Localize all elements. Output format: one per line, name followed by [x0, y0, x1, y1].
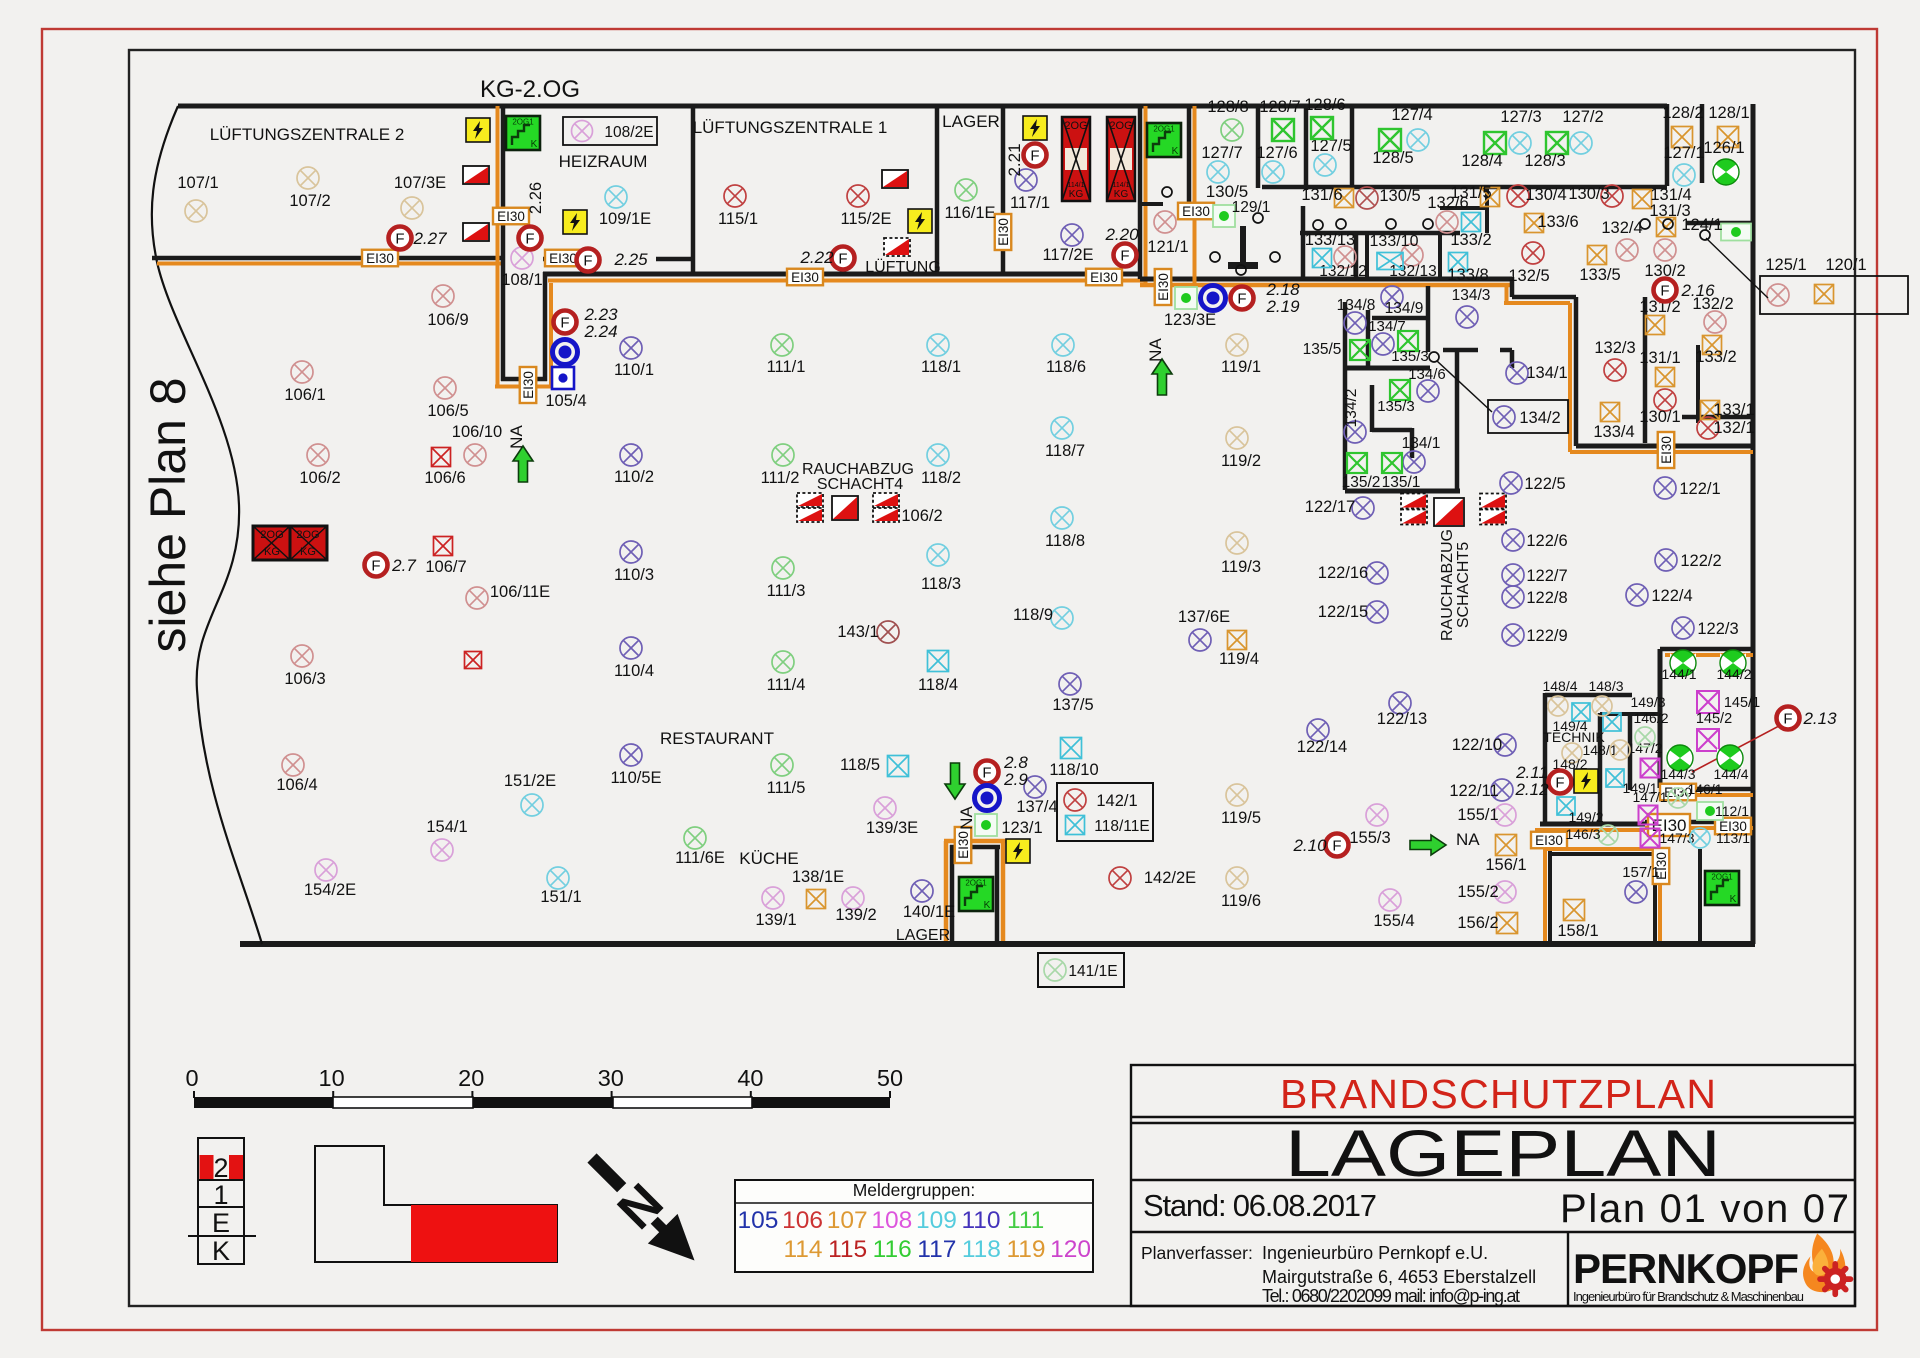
- svg-text:119: 119: [1006, 1236, 1045, 1263]
- svg-text:146/1: 146/1: [1687, 781, 1722, 797]
- svg-text:106/2: 106/2: [299, 469, 340, 487]
- svg-text:119/2: 119/2: [1221, 452, 1261, 470]
- svg-text:120/1: 120/1: [1825, 256, 1866, 274]
- svg-text:K: K: [531, 139, 538, 150]
- svg-text:LÜFTUNGSZENTRALE 2: LÜFTUNGSZENTRALE 2: [210, 125, 405, 144]
- svg-text:133/13: 133/13: [1305, 231, 1355, 249]
- svg-text:111/2: 111/2: [761, 469, 800, 487]
- svg-text:133/6: 133/6: [1537, 213, 1578, 231]
- svg-text:1: 1: [213, 1180, 228, 1210]
- svg-text:111/4: 111/4: [767, 676, 806, 694]
- svg-text:149/3: 149/3: [1630, 694, 1665, 710]
- svg-text:155/4: 155/4: [1373, 912, 1414, 930]
- svg-text:155/3: 155/3: [1349, 829, 1390, 847]
- svg-text:128/2: 128/2: [1662, 104, 1703, 122]
- svg-text:Plan 01 von 07: Plan 01 von 07: [1560, 1187, 1849, 1231]
- svg-text:Tel.: 0680/2202099 mail: info@: Tel.: 0680/2202099 mail: info@p-ing.at: [1262, 1286, 1520, 1306]
- svg-text:118/3: 118/3: [921, 575, 961, 593]
- svg-text:Planverfasser:: Planverfasser:: [1141, 1243, 1253, 1263]
- svg-text:114: 114: [783, 1236, 822, 1263]
- svg-text:139/2: 139/2: [835, 906, 876, 924]
- svg-text:2.10: 2.10: [1292, 836, 1327, 855]
- svg-text:132/5: 132/5: [1508, 267, 1549, 285]
- svg-text:2.24: 2.24: [583, 322, 617, 341]
- svg-text:158/1: 158/1: [1557, 922, 1598, 940]
- svg-text:LAGER: LAGER: [896, 927, 950, 944]
- svg-text:130/1: 130/1: [1639, 408, 1680, 426]
- svg-text:108/1: 108/1: [501, 271, 542, 289]
- svg-text:154/2E: 154/2E: [304, 881, 356, 899]
- svg-text:110/4: 110/4: [614, 662, 654, 680]
- svg-text:118: 118: [962, 1236, 1001, 1263]
- svg-text:157/1: 157/1: [1622, 864, 1660, 881]
- svg-text:133/2: 133/2: [1695, 348, 1736, 366]
- svg-text:110/5E: 110/5E: [610, 769, 661, 787]
- svg-text:EI30: EI30: [791, 270, 819, 285]
- svg-text:115/2E: 115/2E: [840, 210, 891, 228]
- svg-text:K: K: [984, 900, 991, 911]
- svg-text:127/2: 127/2: [1562, 108, 1603, 126]
- svg-text:147/1: 147/1: [1632, 789, 1667, 805]
- svg-text:2.27: 2.27: [412, 229, 447, 248]
- svg-text:130/4: 130/4: [1525, 186, 1566, 204]
- svg-text:KG: KG: [1069, 189, 1084, 200]
- svg-text:110: 110: [961, 1207, 1000, 1234]
- svg-text:F: F: [1120, 248, 1129, 265]
- svg-text:110/1: 110/1: [614, 361, 654, 379]
- svg-text:106/11E: 106/11E: [490, 583, 550, 601]
- svg-text:F: F: [1555, 775, 1564, 792]
- svg-text:2.26: 2.26: [527, 182, 545, 214]
- svg-text:133/5: 133/5: [1579, 266, 1620, 284]
- svg-text:142/1: 142/1: [1096, 792, 1137, 810]
- svg-text:128/3: 128/3: [1524, 152, 1565, 170]
- svg-text:2OG1: 2OG1: [512, 118, 534, 127]
- svg-text:128/5: 128/5: [1372, 149, 1413, 167]
- svg-text:F: F: [1660, 283, 1669, 300]
- svg-text:156/1: 156/1: [1485, 856, 1526, 874]
- svg-text:111: 111: [1007, 1207, 1044, 1234]
- svg-text:134/2: 134/2: [1519, 409, 1560, 427]
- svg-text:108: 108: [871, 1207, 912, 1234]
- svg-text:LAGER: LAGER: [942, 112, 1000, 131]
- svg-text:122/3: 122/3: [1697, 620, 1738, 638]
- svg-text:EI30: EI30: [956, 831, 971, 859]
- svg-text:2.19: 2.19: [1265, 297, 1300, 316]
- svg-text:122/13: 122/13: [1377, 710, 1427, 728]
- svg-text:130/3: 130/3: [1568, 185, 1609, 203]
- svg-text:137/5: 137/5: [1052, 696, 1093, 714]
- svg-text:140/1E: 140/1E: [903, 903, 955, 921]
- svg-text:128/7: 128/7: [1259, 98, 1300, 116]
- svg-text:141/1E: 141/1E: [1068, 963, 1117, 980]
- svg-text:144/1: 144/1: [1661, 666, 1696, 682]
- svg-text:119/5: 119/5: [1221, 809, 1261, 827]
- svg-text:EI30: EI30: [521, 371, 536, 399]
- svg-text:LÜFTUNGSZENTRALE 1: LÜFTUNGSZENTRALE 1: [693, 118, 888, 137]
- svg-text:135/5: 135/5: [1303, 341, 1342, 358]
- svg-text:122/11: 122/11: [1449, 782, 1498, 800]
- svg-text:132/1: 132/1: [1713, 419, 1754, 437]
- svg-text:127/6: 127/6: [1256, 144, 1297, 162]
- svg-text:106/7: 106/7: [425, 558, 466, 576]
- svg-text:2OG1: 2OG1: [965, 879, 987, 888]
- svg-text:151/1: 151/1: [540, 888, 581, 906]
- svg-text:KÜCHE: KÜCHE: [739, 849, 799, 868]
- svg-text:KG: KG: [1114, 189, 1129, 200]
- svg-text:118/4: 118/4: [918, 676, 958, 694]
- svg-text:118/6: 118/6: [1046, 358, 1086, 376]
- svg-text:127/1: 127/1: [1663, 144, 1704, 162]
- svg-text:112/1: 112/1: [1715, 803, 1749, 819]
- svg-text:129/1: 129/1: [1232, 199, 1271, 216]
- svg-text:121/1: 121/1: [1147, 238, 1188, 256]
- svg-text:105: 105: [738, 1207, 779, 1234]
- svg-text:125/1: 125/1: [1765, 256, 1806, 274]
- svg-text:F: F: [982, 765, 991, 782]
- svg-text:132/3: 132/3: [1594, 339, 1635, 357]
- svg-text:117/1: 117/1: [1010, 194, 1050, 212]
- svg-text:122/9: 122/9: [1526, 627, 1567, 645]
- svg-text:122/1: 122/1: [1679, 480, 1720, 498]
- svg-text:EI30: EI30: [366, 251, 394, 266]
- svg-text:F: F: [583, 253, 592, 270]
- svg-text:122/15: 122/15: [1318, 603, 1368, 621]
- svg-text:116/1E: 116/1E: [944, 204, 995, 222]
- svg-text:107/1: 107/1: [177, 174, 218, 192]
- svg-text:132/12: 132/12: [1319, 263, 1366, 280]
- svg-text:2: 2: [213, 1153, 228, 1183]
- svg-text:NA: NA: [957, 806, 976, 830]
- svg-text:135/1: 135/1: [1382, 474, 1421, 491]
- svg-text:107/2: 107/2: [289, 192, 330, 210]
- svg-text:122/6: 122/6: [1526, 532, 1567, 550]
- svg-text:123/3E: 123/3E: [1164, 311, 1216, 329]
- svg-text:128/8: 128/8: [1207, 98, 1248, 116]
- svg-text:107: 107: [827, 1207, 868, 1234]
- svg-text:106/10: 106/10: [452, 423, 502, 441]
- svg-text:116: 116: [873, 1236, 912, 1263]
- svg-text:NA: NA: [1146, 338, 1165, 362]
- svg-text:122/2: 122/2: [1680, 552, 1721, 570]
- svg-text:SCHACHT5: SCHACHT5: [1455, 542, 1472, 628]
- svg-text:139/1: 139/1: [755, 911, 796, 929]
- svg-text:149/2: 149/2: [1568, 809, 1603, 825]
- svg-text:135/3: 135/3: [1391, 348, 1429, 365]
- svg-text:EI30: EI30: [1090, 270, 1118, 285]
- svg-text:106/1: 106/1: [284, 386, 325, 404]
- svg-text:155/1: 155/1: [1457, 806, 1498, 824]
- svg-text:110/3: 110/3: [614, 566, 654, 584]
- svg-text:EI30: EI30: [1659, 436, 1674, 464]
- svg-text:130/5: 130/5: [1379, 187, 1420, 205]
- svg-text:KG: KG: [264, 546, 280, 558]
- svg-text:134/1: 134/1: [1526, 364, 1567, 382]
- svg-text:120: 120: [1050, 1236, 1091, 1263]
- svg-text:133/1: 133/1: [1713, 401, 1754, 419]
- svg-text:142/2E: 142/2E: [1144, 869, 1196, 887]
- svg-text:RAUCHABZUG: RAUCHABZUG: [1439, 529, 1456, 641]
- svg-text:119/4: 119/4: [1219, 650, 1259, 668]
- svg-text:134/6: 134/6: [1408, 366, 1446, 383]
- svg-text:PERNKOPF: PERNKOPF: [1573, 1245, 1799, 1292]
- svg-text:127/7: 127/7: [1201, 144, 1242, 162]
- svg-text:Mairgutstraße 6, 4653 Eberstal: Mairgutstraße 6, 4653 Eberstalzell: [1262, 1267, 1536, 1287]
- svg-text:135/3: 135/3: [1377, 398, 1415, 415]
- svg-text:145/1: 145/1: [1724, 695, 1760, 711]
- svg-text:134/2: 134/2: [1343, 389, 1360, 428]
- svg-text:HEIZRAUM: HEIZRAUM: [559, 152, 648, 171]
- svg-text:154/1: 154/1: [426, 818, 467, 836]
- svg-text:122/4: 122/4: [1651, 587, 1692, 605]
- svg-text:2.21: 2.21: [1005, 143, 1024, 176]
- svg-text:0: 0: [185, 1065, 198, 1091]
- svg-text:111/1: 111/1: [767, 358, 806, 376]
- svg-text:F: F: [1332, 838, 1341, 855]
- svg-text:RESTAURANT: RESTAURANT: [660, 729, 774, 748]
- svg-text:110/2: 110/2: [614, 468, 654, 486]
- svg-text:111/5: 111/5: [767, 779, 806, 797]
- svg-text:2.16: 2.16: [1680, 281, 1715, 300]
- svg-text:F: F: [1030, 148, 1039, 165]
- svg-text:122/5: 122/5: [1524, 475, 1565, 493]
- svg-text:2.20: 2.20: [1104, 225, 1139, 244]
- svg-text:126/1: 126/1: [1703, 139, 1744, 157]
- svg-text:143/1: 143/1: [837, 623, 878, 641]
- svg-text:2OG: 2OG: [1064, 120, 1087, 132]
- svg-text:118/8: 118/8: [1045, 532, 1085, 550]
- svg-text:133/10: 133/10: [1370, 233, 1419, 250]
- svg-text:NA: NA: [507, 425, 526, 449]
- svg-text:119/6: 119/6: [1221, 892, 1261, 910]
- svg-text:149/4: 149/4: [1552, 718, 1587, 734]
- svg-text:105/4: 105/4: [545, 392, 586, 410]
- svg-text:BRANDSCHUTZPLAN: BRANDSCHUTZPLAN: [1280, 1071, 1716, 1117]
- svg-text:EI30: EI30: [549, 251, 577, 266]
- svg-text:106/5: 106/5: [427, 402, 468, 420]
- svg-text:137/4: 137/4: [1016, 798, 1057, 816]
- svg-text:109/1E: 109/1E: [599, 210, 651, 228]
- svg-text:115/1: 115/1: [718, 210, 758, 228]
- svg-text:151/2E: 151/2E: [504, 772, 556, 790]
- svg-text:144/4: 144/4: [1713, 766, 1748, 782]
- svg-text:106: 106: [782, 1207, 823, 1234]
- svg-text:122/8: 122/8: [1526, 589, 1567, 607]
- svg-text:EI30: EI30: [1182, 204, 1210, 219]
- svg-text:F: F: [838, 251, 847, 268]
- svg-text:2.12: 2.12: [1514, 780, 1549, 799]
- svg-text:2.13: 2.13: [1802, 709, 1837, 728]
- svg-text:2.9: 2.9: [1003, 770, 1028, 789]
- svg-text:146/2: 146/2: [1633, 710, 1668, 726]
- svg-text:117: 117: [917, 1236, 956, 1263]
- svg-text:siehe Plan 8: siehe Plan 8: [140, 377, 196, 652]
- svg-text:127/3: 127/3: [1500, 108, 1541, 126]
- svg-text:2.22: 2.22: [799, 248, 834, 267]
- svg-text:146/3: 146/3: [1565, 826, 1600, 842]
- svg-text:F: F: [525, 231, 534, 248]
- svg-text:122/17: 122/17: [1305, 498, 1355, 516]
- svg-text:LÜFTUNG: LÜFTUNG: [865, 258, 941, 276]
- svg-text:EI30: EI30: [1156, 273, 1171, 301]
- svg-text:128/4: 128/4: [1461, 152, 1502, 170]
- svg-text:131/6: 131/6: [1301, 186, 1342, 204]
- svg-text:119/1: 119/1: [1221, 358, 1261, 376]
- svg-text:2OG1: 2OG1: [1711, 873, 1733, 882]
- svg-text:108/2E: 108/2E: [604, 124, 653, 141]
- svg-text:NA: NA: [1456, 830, 1480, 849]
- svg-text:118/1: 118/1: [921, 358, 961, 376]
- svg-text:128/6: 128/6: [1304, 96, 1345, 114]
- svg-text:130/5: 130/5: [1206, 182, 1249, 201]
- svg-text:106/3: 106/3: [284, 670, 325, 688]
- svg-text:2OG: 2OG: [260, 529, 283, 541]
- svg-text:F: F: [395, 231, 404, 248]
- svg-text:EI30: EI30: [1535, 833, 1563, 848]
- svg-text:133/8: 133/8: [1447, 266, 1488, 284]
- svg-text:128/1: 128/1: [1708, 104, 1749, 122]
- svg-text:LAGEPLAN: LAGEPLAN: [1285, 1116, 1721, 1190]
- svg-text:KG-2.OG: KG-2.OG: [480, 76, 580, 103]
- svg-text:2.7: 2.7: [391, 556, 416, 575]
- svg-text:144/2: 144/2: [1716, 666, 1751, 682]
- svg-text:122/16: 122/16: [1318, 564, 1368, 582]
- svg-text:122/14: 122/14: [1297, 738, 1347, 756]
- svg-text:Ingenieurbüro Pernkopf e.U.: Ingenieurbüro Pernkopf e.U.: [1262, 1243, 1488, 1263]
- svg-text:135/2: 135/2: [1342, 474, 1381, 491]
- svg-text:106/2: 106/2: [901, 507, 942, 525]
- svg-text:2OG1: 2OG1: [1153, 125, 1175, 134]
- svg-text:113/1: 113/1: [1716, 830, 1750, 846]
- svg-text:Stand: 06.08.2017: Stand: 06.08.2017: [1143, 1188, 1377, 1223]
- svg-text:133/2: 133/2: [1450, 231, 1491, 249]
- svg-text:134/8: 134/8: [1337, 297, 1376, 314]
- svg-text:107/3E: 107/3E: [394, 174, 446, 192]
- svg-text:2OG: 2OG: [1109, 120, 1132, 132]
- svg-text:KG: KG: [300, 546, 316, 558]
- svg-text:30: 30: [598, 1065, 624, 1091]
- svg-text:K: K: [1172, 146, 1179, 157]
- svg-text:106/9: 106/9: [427, 311, 468, 329]
- svg-text:134/3: 134/3: [1452, 287, 1491, 304]
- svg-text:F: F: [371, 558, 380, 575]
- svg-text:106/4: 106/4: [276, 776, 317, 794]
- svg-text:F: F: [560, 315, 569, 332]
- svg-text:134/1: 134/1: [1402, 435, 1441, 452]
- svg-text:40: 40: [737, 1065, 763, 1091]
- svg-text:2OG: 2OG: [296, 529, 319, 541]
- svg-text:118/9: 118/9: [1013, 606, 1053, 624]
- svg-text:SCHACHT4: SCHACHT4: [817, 476, 903, 493]
- svg-text:138/1E: 138/1E: [792, 868, 844, 886]
- svg-text:114/1: 114/1: [1068, 182, 1085, 189]
- svg-text:118/5: 118/5: [840, 756, 880, 774]
- svg-text:133/4: 133/4: [1593, 423, 1634, 441]
- svg-text:115: 115: [828, 1236, 867, 1263]
- svg-text:117/2E: 117/2E: [1042, 246, 1093, 264]
- svg-text:119/3: 119/3: [1221, 558, 1261, 576]
- svg-text:137/6E: 137/6E: [1178, 608, 1230, 626]
- svg-text:139/3E: 139/3E: [866, 819, 918, 837]
- svg-text:156/2: 156/2: [1457, 914, 1498, 932]
- svg-text:K: K: [212, 1236, 230, 1266]
- svg-text:118/7: 118/7: [1045, 442, 1085, 460]
- svg-text:106/6: 106/6: [424, 469, 465, 487]
- svg-text:114/1: 114/1: [1113, 182, 1130, 189]
- svg-text:122/7: 122/7: [1526, 567, 1567, 585]
- svg-text:111/3: 111/3: [767, 582, 806, 600]
- svg-text:111/6E: 111/6E: [675, 849, 725, 867]
- svg-text:Ingenieurbüro für Brandschutz: Ingenieurbüro für Brandschutz & Maschine…: [1573, 1289, 1804, 1304]
- svg-text:EI30: EI30: [996, 218, 1011, 246]
- svg-text:148/3: 148/3: [1588, 678, 1623, 694]
- svg-text:F: F: [1783, 711, 1792, 728]
- svg-text:118/2: 118/2: [921, 469, 961, 487]
- svg-text:132/4: 132/4: [1601, 219, 1642, 237]
- svg-text:145/2: 145/2: [1696, 711, 1732, 727]
- svg-text:118/10: 118/10: [1049, 761, 1098, 779]
- svg-text:F: F: [1237, 291, 1246, 308]
- svg-text:131/1: 131/1: [1639, 349, 1680, 367]
- svg-text:EI30: EI30: [497, 209, 525, 224]
- svg-text:131/5: 131/5: [1450, 184, 1491, 202]
- svg-text:127/4: 127/4: [1391, 106, 1432, 124]
- svg-text:147/2: 147/2: [1627, 740, 1662, 756]
- svg-text:20: 20: [458, 1065, 484, 1091]
- svg-text:K: K: [1730, 894, 1737, 905]
- svg-text:Meldergruppen:: Meldergruppen:: [853, 1180, 976, 1200]
- svg-text:155/2: 155/2: [1457, 883, 1498, 901]
- svg-text:148/4: 148/4: [1542, 678, 1577, 694]
- svg-text:122/10: 122/10: [1452, 736, 1502, 754]
- svg-text:E: E: [212, 1208, 230, 1238]
- svg-text:134/9: 134/9: [1385, 300, 1424, 317]
- svg-text:109: 109: [916, 1207, 957, 1234]
- svg-text:144/3: 144/3: [1660, 766, 1695, 782]
- svg-text:118/11E: 118/11E: [1094, 818, 1149, 835]
- svg-text:10: 10: [319, 1065, 345, 1091]
- svg-text:2.25: 2.25: [613, 250, 648, 269]
- svg-text:50: 50: [877, 1065, 903, 1091]
- svg-text:123/1: 123/1: [1001, 819, 1042, 837]
